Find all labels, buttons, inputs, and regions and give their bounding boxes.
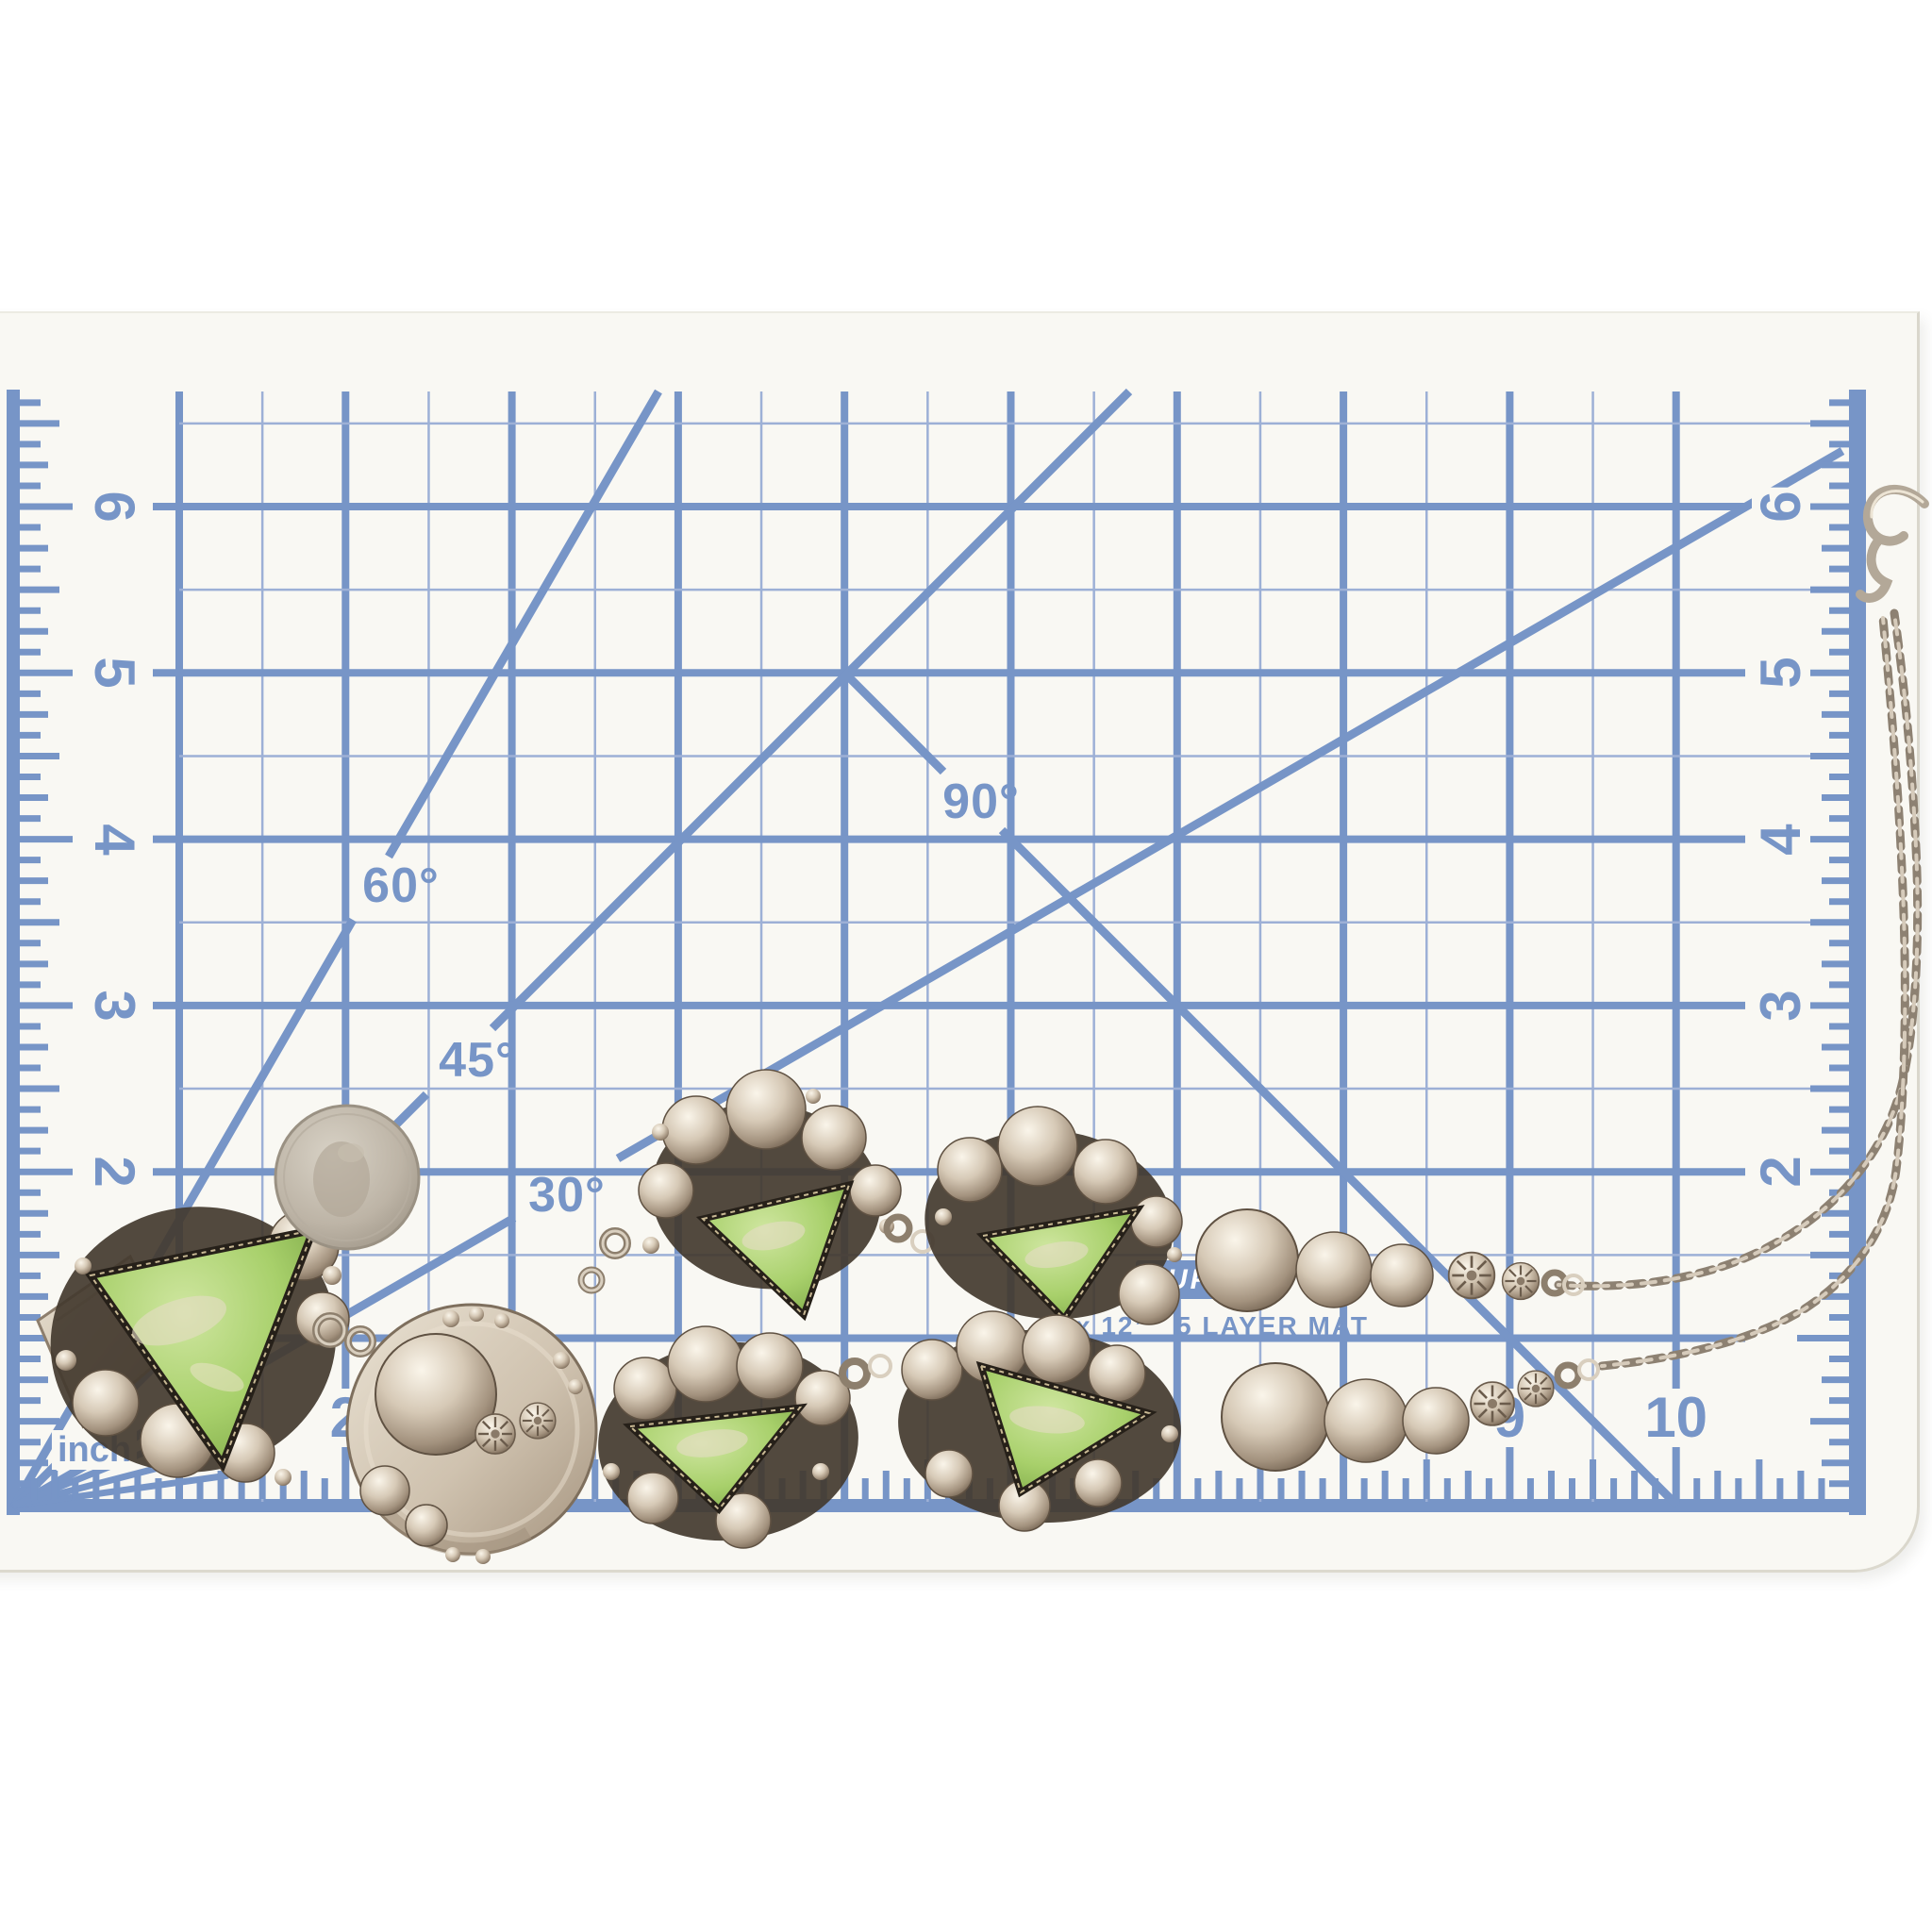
chain — [1558, 613, 1918, 1366]
necklace-and-coin — [0, 0, 1932, 1932]
pendant-upper-1 — [639, 1070, 901, 1315]
connector-link — [842, 1356, 891, 1386]
coin — [275, 1106, 419, 1249]
bead-run-upper — [1196, 1209, 1583, 1311]
flower-concho-icon — [520, 1403, 556, 1439]
medallion — [347, 1305, 596, 1564]
pendant-lower-2 — [893, 1311, 1186, 1531]
pendant-upper-2 — [915, 1107, 1182, 1331]
connector-link — [581, 1231, 627, 1291]
pendant-lower-1 — [591, 1326, 865, 1549]
clasp-hook-icon — [1860, 490, 1924, 598]
bead-run-lower — [1222, 1360, 1598, 1471]
flower-concho-icon — [475, 1414, 515, 1454]
photo-stage: SUP x 12” 5 LAYER MAT inch 30° 45° 60° 9… — [0, 0, 1932, 1932]
